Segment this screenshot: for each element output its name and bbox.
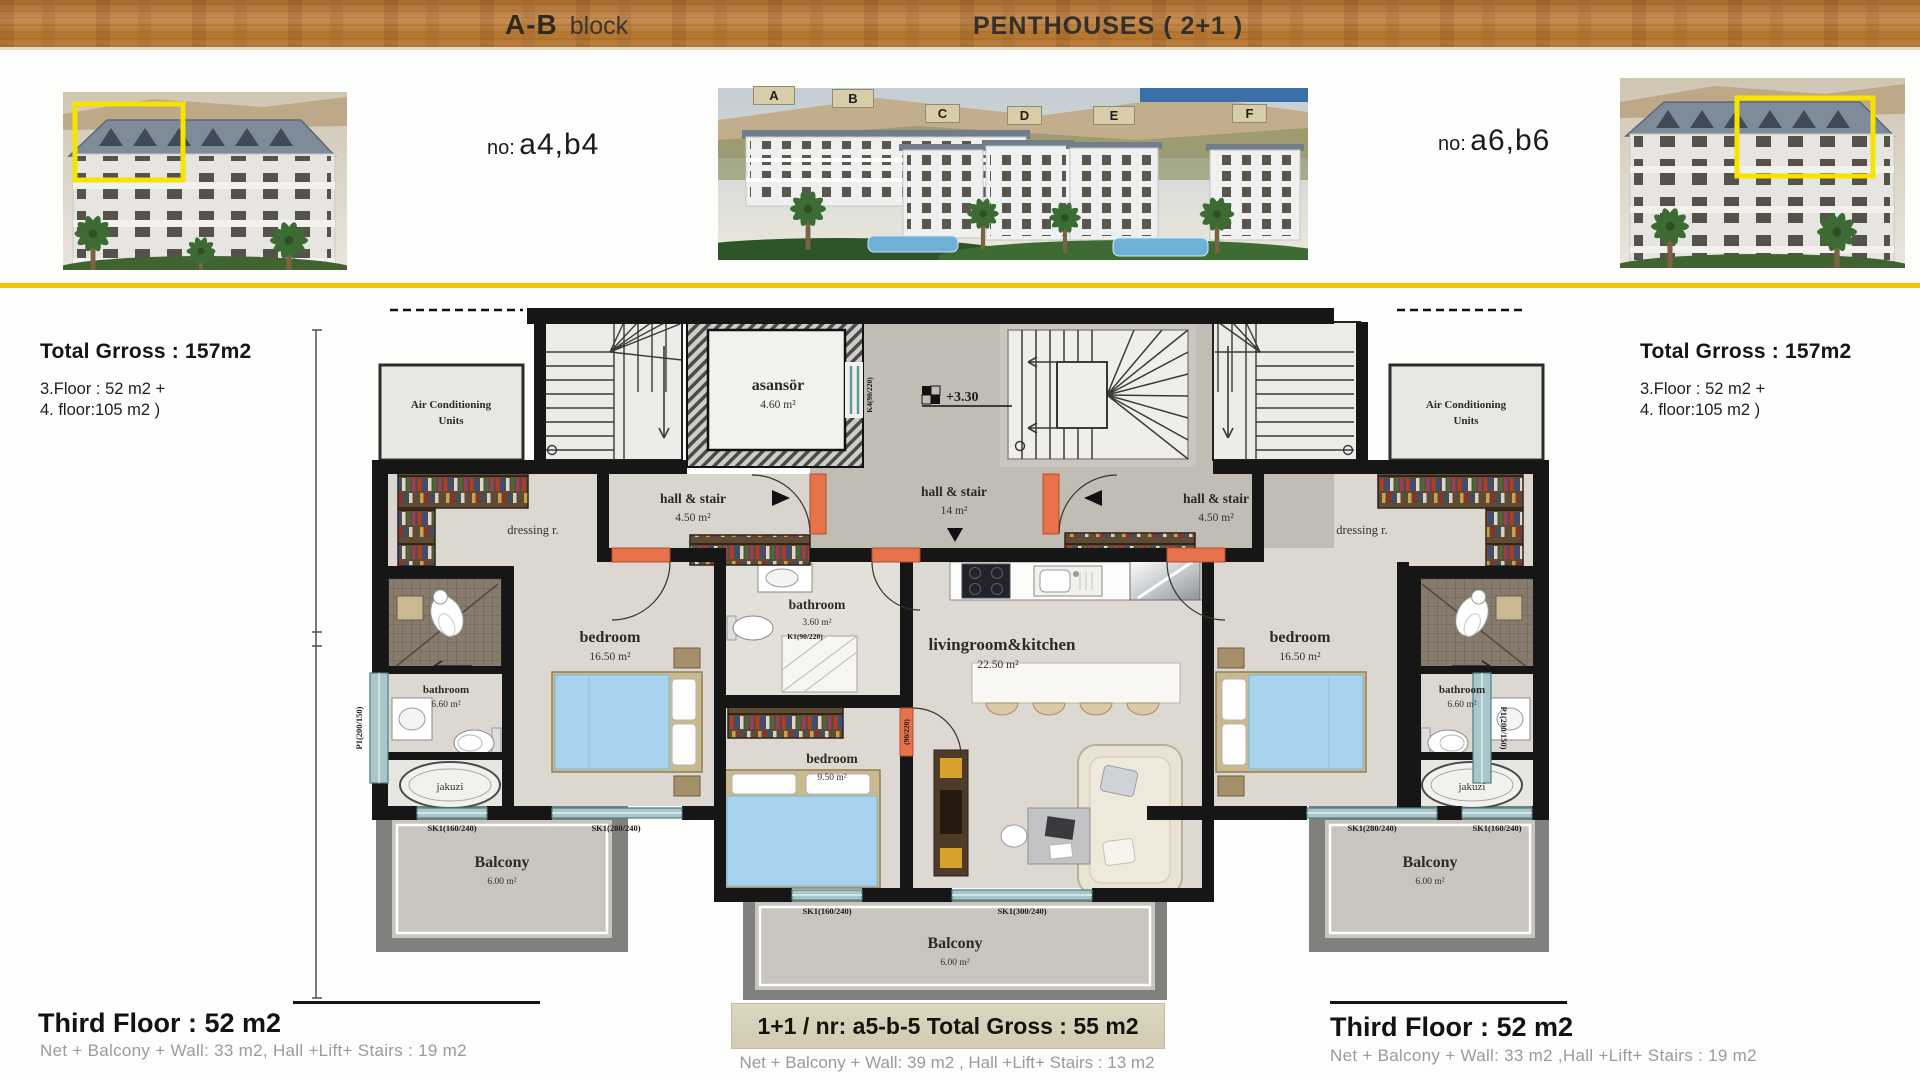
svg-text:6.00 m²: 6.00 m² xyxy=(1415,877,1444,887)
block-label: A-Bblock xyxy=(505,9,628,41)
balcony-left-label: Balcony xyxy=(474,854,529,871)
balcony-center-label: Balcony xyxy=(927,935,982,952)
svg-text:6.00 m²: 6.00 m² xyxy=(487,877,516,887)
kitchen xyxy=(950,560,1202,600)
stair-right xyxy=(1213,322,1360,460)
tv-unit xyxy=(934,750,968,876)
total-gross-title: Total Grross : 157m2 xyxy=(40,340,340,364)
total-gross-title: Total Grross : 157m2 xyxy=(1640,340,1920,364)
window-tag: SK1(280/240) xyxy=(591,823,640,833)
bathroom-right-label: bathroom xyxy=(1439,684,1485,696)
floor4-area: 4. floor:105 m2 ) xyxy=(40,401,340,420)
footer-left-subtitle: Net + Balcony + Wall: 33 m2, Hall +Lift+… xyxy=(40,1041,467,1061)
stair-center xyxy=(1000,322,1196,467)
jakuzi-right-label: jakuzi xyxy=(1458,781,1486,793)
ac-units-right-label: Air Conditioning xyxy=(1426,399,1507,411)
floor3-area: 3.Floor : 52 m2 + xyxy=(1640,380,1920,399)
svg-text:Units: Units xyxy=(438,415,464,427)
wardrobe-right-side xyxy=(1486,508,1523,566)
hall-left-label: hall & stair xyxy=(660,491,726,506)
floor-plan: +3.30 Air Conditioning Units Air Conditi… xyxy=(312,300,1549,1010)
window-tag: SK1(300/240) xyxy=(997,906,1046,916)
bottom-line-right xyxy=(1330,1001,1567,1004)
footer-center-title: 1+1 / nr: a5-b-5 Total Gross : 55 m2 xyxy=(731,1003,1165,1049)
window-tag: SK1(160/240) xyxy=(427,823,476,833)
hall-right-label: hall & stair xyxy=(1183,491,1249,506)
no-label: no: xyxy=(1438,133,1466,155)
hall-center-label: hall & stair xyxy=(921,484,987,499)
door-tag-k1: K1(90/220) xyxy=(787,632,823,641)
svg-text:16.50 m²: 16.50 m² xyxy=(589,651,631,663)
ac-units-left-label: Air Conditioning xyxy=(411,399,492,411)
jakuzi-left-label: jakuzi xyxy=(436,781,464,793)
unit-caption-left: no: a4,b4 xyxy=(487,128,599,162)
ac-units-left-box xyxy=(380,365,523,460)
elevator-label: asansör xyxy=(752,377,804,394)
floor4-area: 4. floor:105 m2 ) xyxy=(1640,401,1920,420)
door-tag-90: (90/220) xyxy=(902,719,911,745)
block-tag-d: D xyxy=(1007,106,1042,125)
dressing-left-label: dressing r. xyxy=(507,523,558,537)
summary-right: Total Grross : 157m2 3.Floor : 52 m2 + 4… xyxy=(1640,340,1920,420)
svg-text:Units: Units xyxy=(1453,415,1479,427)
building-photo-left xyxy=(63,92,347,270)
window-tag: SK1(280/240) xyxy=(1347,823,1396,833)
yellow-divider xyxy=(0,283,1920,288)
svg-text:9.50 m²: 9.50 m² xyxy=(817,773,846,783)
wardrobe-left-side xyxy=(398,508,435,566)
building-photo-right xyxy=(1620,78,1905,268)
svg-text:4.60 m²: 4.60 m² xyxy=(760,399,796,411)
window-tag-p1-left: P1(200/150) xyxy=(354,706,364,749)
block-name: A-B xyxy=(505,9,558,40)
ac-units-right-box xyxy=(1390,365,1543,460)
page-title: PENTHOUSES ( 2+1 ) xyxy=(973,12,1243,41)
wardrobe-left-top xyxy=(398,473,528,508)
unit-number-left: a4,b4 xyxy=(519,128,599,161)
floor3-area: 3.Floor : 52 m2 + xyxy=(40,380,340,399)
svg-text:14 m²: 14 m² xyxy=(941,505,968,517)
footer-right-subtitle: Net + Balcony + Wall: 33 m2 ,Hall +Lift+… xyxy=(1330,1046,1757,1066)
no-label: no: xyxy=(487,137,515,159)
window-tag-p1-right: P1(200/150) xyxy=(1499,707,1509,750)
balcony-right-label: Balcony xyxy=(1402,854,1457,871)
block-word: block xyxy=(570,12,628,40)
bathroom-center-label: bathroom xyxy=(789,597,847,612)
penthouse-plan-sheet: A-Bblock PENTHOUSES ( 2+1 ) xyxy=(0,0,1920,1080)
svg-text:16.50 m²: 16.50 m² xyxy=(1279,651,1321,663)
bedroom-center-label: bedroom xyxy=(806,751,858,766)
bottom-line-left xyxy=(293,1001,540,1004)
svg-text:4.50 m²: 4.50 m² xyxy=(1198,512,1234,524)
window-tag: SK1(160/240) xyxy=(802,906,851,916)
level-value: +3.30 xyxy=(946,390,978,405)
bedroom-right-label: bedroom xyxy=(1269,629,1331,646)
footer-center-subtitle: Net + Balcony + Wall: 39 m2 , Hall +Lift… xyxy=(701,1053,1193,1073)
block-tag-e: E xyxy=(1093,106,1135,125)
bedroom-left-label: bedroom xyxy=(579,629,641,646)
shower-right xyxy=(1417,578,1535,672)
block-tag-a: A xyxy=(753,86,795,105)
unit-caption-right: no: a6,b6 xyxy=(1438,124,1550,158)
footer-right-title: Third Floor : 52 m2 xyxy=(1330,1012,1573,1043)
svg-text:22.50 m²: 22.50 m² xyxy=(977,659,1019,671)
wardrobe-right-top xyxy=(1378,473,1523,508)
block-tag-f: F xyxy=(1232,104,1267,123)
svg-text:6.60 m²: 6.60 m² xyxy=(1447,700,1476,710)
bed-center xyxy=(724,770,880,888)
summary-left: Total Grross : 157m2 3.Floor : 52 m2 + 4… xyxy=(40,340,340,420)
dressing-right-label: dressing r. xyxy=(1336,523,1387,537)
svg-text:6.60 m²: 6.60 m² xyxy=(431,700,460,710)
dimension-line xyxy=(312,330,322,998)
block-tag-b: B xyxy=(832,89,874,108)
shower-left xyxy=(388,578,502,672)
unit-number-right: a6,b6 xyxy=(1470,124,1550,157)
svg-text:4.50 m²: 4.50 m² xyxy=(675,512,711,524)
living-label: livingroom&kitchen xyxy=(928,635,1076,654)
block-tag-c: C xyxy=(925,104,960,123)
window-tag: SK1(160/240) xyxy=(1472,823,1521,833)
bathroom-left-label: bathroom xyxy=(423,684,469,696)
svg-text:3.60 m²: 3.60 m² xyxy=(802,618,831,628)
wood-header-bar: A-Bblock PENTHOUSES ( 2+1 ) xyxy=(0,0,1920,50)
footer-left-title: Third Floor : 52 m2 xyxy=(38,1008,281,1039)
stair-left xyxy=(540,322,682,460)
svg-text:6.00 m²: 6.00 m² xyxy=(940,958,969,968)
door-tag-k4: K4(90/220) xyxy=(865,377,874,413)
